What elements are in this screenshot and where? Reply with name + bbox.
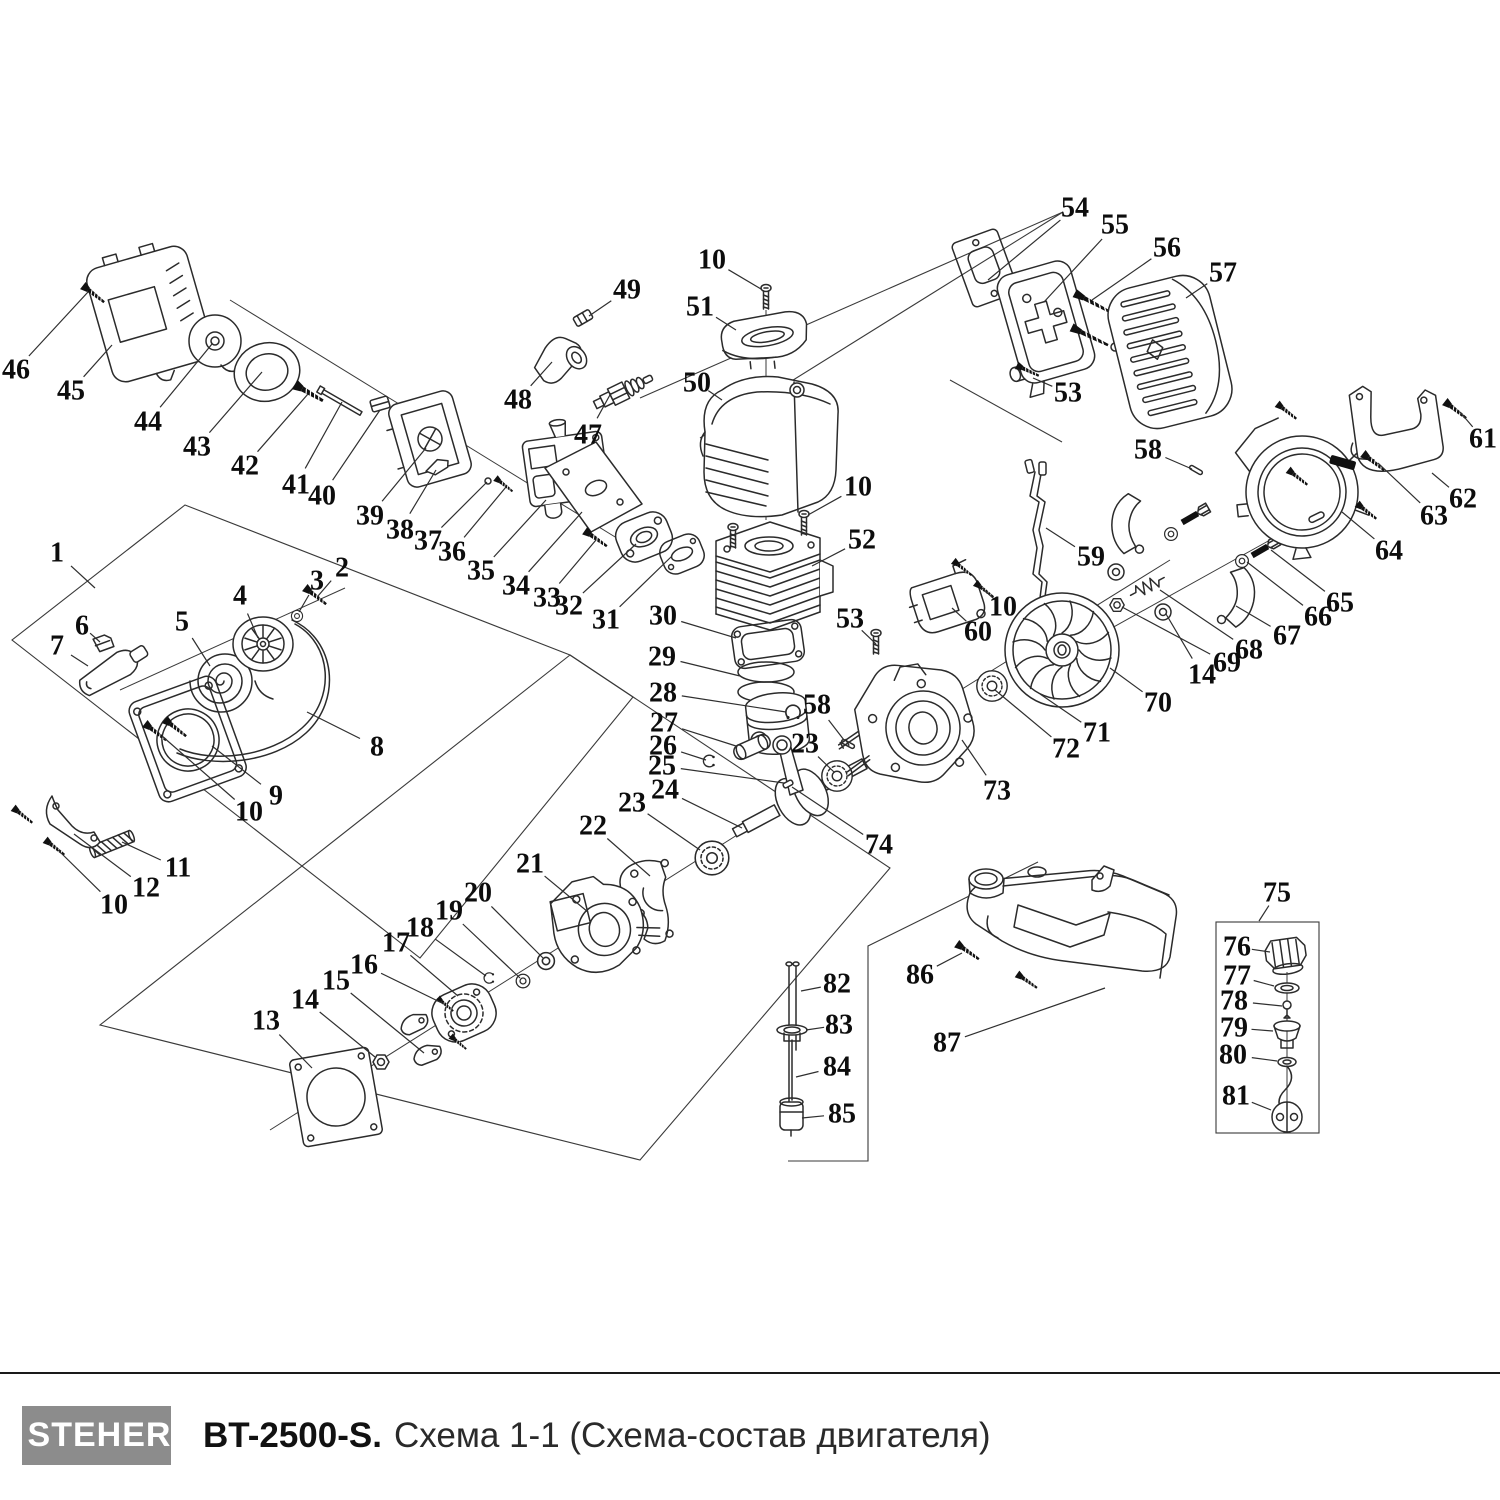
part-69-nut <box>1110 599 1124 612</box>
part-number-label: 50 <box>683 368 711 399</box>
part-62-bracket <box>1347 381 1445 473</box>
part-number-label: 27 <box>650 708 678 739</box>
part-80-seal <box>1278 1058 1296 1067</box>
model-number: BT-2500-S. <box>203 1416 382 1456</box>
part-number-label: 10 <box>989 592 1017 623</box>
exploded-parts-diagram: 1234567891011121013141516171819202122232… <box>0 0 1500 1500</box>
part-number-label: 8 <box>370 732 384 763</box>
part-number-label: 81 <box>1222 1081 1250 1112</box>
part-70-flywheel <box>1005 593 1119 707</box>
part-45-air-filter-cover <box>81 235 218 394</box>
leader-line <box>1254 981 1274 987</box>
part-86-screw <box>1015 971 1040 992</box>
part-washer <box>1165 528 1178 541</box>
sheet-subtitle: Схема 1-1 (Схема-состав двигателя) <box>394 1416 991 1456</box>
brand-logo: STEHER <box>22 1406 171 1465</box>
part-number-label: 37 <box>414 526 442 557</box>
part-10-screw <box>761 285 771 310</box>
part-number-label: 56 <box>1153 233 1181 264</box>
leader-line <box>962 740 986 775</box>
leader-line <box>299 595 309 612</box>
part-number-label: 10 <box>100 890 128 921</box>
part-number-label: 21 <box>516 849 544 880</box>
part-number-label: 40 <box>308 481 336 512</box>
leader-line <box>682 798 742 828</box>
leader-line <box>682 729 736 746</box>
part-number-label: 76 <box>1223 932 1251 963</box>
part-number-label: 22 <box>579 811 607 842</box>
part-57-muffler-cover <box>1102 270 1238 435</box>
part-number-label: 82 <box>823 969 851 1000</box>
leader-line <box>1252 1102 1271 1110</box>
part-9-starter-housing <box>126 674 249 805</box>
part-number-label: 30 <box>649 601 677 632</box>
leader-line <box>410 955 458 996</box>
part-26-circlip <box>703 755 714 767</box>
footer-divider <box>0 1372 1500 1374</box>
part-number-label: 85 <box>828 1099 856 1130</box>
part-12-bracket <box>11 796 100 858</box>
part-64-fan-housing <box>1228 410 1372 565</box>
part-number-label: 61 <box>1469 424 1497 455</box>
part-number-label: 52 <box>848 525 876 556</box>
part-number-label: 69 <box>1213 648 1241 679</box>
part-number-label: 55 <box>1101 210 1129 241</box>
part-number-label: 87 <box>933 1028 961 1059</box>
part-washer <box>1108 564 1124 580</box>
leader-line <box>937 953 962 966</box>
part-17-flange <box>426 978 503 1049</box>
part-number-label: 58 <box>1134 435 1162 466</box>
part-number-label: 72 <box>1052 734 1080 765</box>
leader-line <box>728 270 761 289</box>
part-number-label: 35 <box>467 556 495 587</box>
leader-line <box>681 752 706 760</box>
leader-line <box>494 500 546 557</box>
part-36-screw <box>493 475 514 494</box>
leader-line <box>463 924 520 978</box>
part-66-washer <box>1236 555 1249 568</box>
leader-line <box>258 394 309 452</box>
part-number-label: 84 <box>823 1052 851 1083</box>
part-77-washer <box>1275 983 1299 993</box>
part-number-label: 44 <box>134 407 162 438</box>
leader-line <box>681 769 784 783</box>
leader-line <box>681 662 741 677</box>
part-number-label: 2 <box>335 553 349 584</box>
part-number-label: 48 <box>504 385 532 416</box>
part-number-label: 16 <box>350 950 378 981</box>
part-number-label: 66 <box>1304 602 1332 633</box>
part-7-starter-handle <box>75 639 153 701</box>
part-number-label: 13 <box>252 1006 280 1037</box>
leader-line <box>802 1116 824 1118</box>
part-55-muffler-body <box>983 258 1101 401</box>
part-number-label: 53 <box>836 604 864 635</box>
leader-line <box>84 345 112 377</box>
leader-line <box>806 1027 824 1030</box>
part-67-clutch-shoe <box>1217 565 1257 628</box>
leader-line <box>74 834 131 877</box>
part-87-fuel-tank <box>967 866 1176 978</box>
part-number-label: 10 <box>844 472 872 503</box>
part-clutch-bolt <box>1180 503 1211 527</box>
leader-line <box>681 622 736 639</box>
leader-line <box>1110 668 1143 692</box>
part-15-claw <box>398 1011 431 1037</box>
part-number-label: 70 <box>1144 688 1172 719</box>
leader-line <box>559 540 596 584</box>
part-39-filter-base <box>381 389 474 492</box>
leader-line <box>801 987 821 991</box>
leader-line <box>796 1072 819 1078</box>
part-number-label: 31 <box>592 605 620 636</box>
page: 1234567891011121013141516171819202122232… <box>0 0 1500 1500</box>
part-78-valve <box>1283 1001 1291 1018</box>
leader-line <box>583 544 636 593</box>
part-number-label: 9 <box>269 781 283 812</box>
leader-line <box>529 512 582 572</box>
part-number-label: 39 <box>356 501 384 532</box>
leader-line <box>965 988 1105 1037</box>
leader-line <box>829 720 844 740</box>
part-50-engine-cover <box>700 377 838 517</box>
part-4-rope-pulley <box>233 617 293 671</box>
part-number-label: 43 <box>183 432 211 463</box>
part-number-label: 46 <box>2 355 30 386</box>
part-81-retainer <box>1272 1102 1302 1132</box>
leader-line <box>1252 1058 1277 1061</box>
part-number-label: 73 <box>983 776 1011 807</box>
part-number-label: 18 <box>406 913 434 944</box>
leader-line <box>71 655 88 666</box>
part-number-label: 49 <box>613 275 641 306</box>
leader-line <box>1253 1003 1282 1006</box>
part-number-label: 41 <box>282 470 310 501</box>
part-40-choke-piece <box>370 396 391 412</box>
leader-line <box>648 814 700 850</box>
part-6-rope-guide <box>93 633 114 652</box>
part-number-label: 71 <box>1083 718 1111 749</box>
part-number-label: 62 <box>1449 484 1477 515</box>
brand-name: STEHER <box>28 1416 172 1455</box>
part-number-label: 23 <box>618 788 646 819</box>
leader-line <box>29 292 88 356</box>
part-number-label: 63 <box>1420 501 1448 532</box>
part-58-pin <box>1189 465 1203 475</box>
part-number-label: 1 <box>50 538 64 569</box>
part-number-label: 15 <box>322 966 350 997</box>
part-number-label: 6 <box>75 611 89 642</box>
part-73-crankcase-half <box>827 653 982 796</box>
leader-line <box>589 301 611 316</box>
leader-line <box>620 556 672 607</box>
part-18-circlip <box>484 973 494 983</box>
part-number-label: 10 <box>698 245 726 276</box>
part-number-label: 60 <box>964 617 992 648</box>
part-76-tank-cap <box>1264 936 1308 976</box>
part-number-label: 51 <box>686 292 714 323</box>
part-number-label: 45 <box>57 376 85 407</box>
part-number-label: 75 <box>1263 878 1291 909</box>
part-number-label: 57 <box>1209 258 1237 289</box>
leader-line <box>435 939 486 976</box>
part-number-label: 7 <box>50 631 64 662</box>
leader-line <box>491 906 543 958</box>
part-52-cylinder <box>716 511 833 631</box>
leader-line <box>441 482 487 528</box>
part-13-mount-plate <box>289 1047 383 1148</box>
leader-line <box>192 638 210 666</box>
leader-line <box>1166 614 1192 659</box>
leader-line <box>305 402 342 468</box>
leader-line <box>1252 1029 1274 1031</box>
leader-line <box>1271 550 1325 591</box>
part-number-label: 80 <box>1219 1040 1247 1071</box>
part-clutch-shoe <box>1109 492 1149 555</box>
part-number-label: 3 <box>310 566 324 597</box>
leader-line <box>333 410 380 480</box>
part-number-label: 14 <box>1188 660 1216 691</box>
part-number-label: 53 <box>1054 378 1082 409</box>
part-number-label: 5 <box>175 607 189 638</box>
leader-line <box>381 973 444 1004</box>
part-number-label: 54 <box>1061 193 1089 224</box>
part-number-label: 38 <box>386 515 414 546</box>
part-number-label: 33 <box>533 583 561 614</box>
leader-line <box>1432 473 1449 487</box>
part-number-label: 23 <box>791 729 819 760</box>
leader-line <box>122 842 161 860</box>
leader-line <box>307 712 360 739</box>
part-41-rod <box>317 386 363 417</box>
part-68-spring <box>1128 572 1167 600</box>
part-number-label: 20 <box>464 878 492 909</box>
part-number-label: 10 <box>235 797 263 828</box>
part-number-label: 86 <box>906 960 934 991</box>
leader-line <box>1165 458 1192 470</box>
part-number-label: 29 <box>648 642 676 673</box>
part-number-label: 47 <box>574 420 602 451</box>
part-49-clip <box>573 309 594 327</box>
part-number-label: 58 <box>803 690 831 721</box>
leader-line <box>58 850 100 892</box>
part-47-spark-plug <box>591 369 656 413</box>
part-number-label: 42 <box>231 451 259 482</box>
part-number-label: 74 <box>865 830 893 861</box>
part-51-cover-plate <box>719 310 810 374</box>
part-number-label: 14 <box>291 985 319 1016</box>
part-3-washer <box>291 610 302 621</box>
part-86-screw <box>954 940 981 963</box>
part-number-label: 67 <box>1273 621 1301 652</box>
part-number-label: 11 <box>165 853 191 884</box>
part-number-label: 28 <box>649 678 677 709</box>
part-number-label: 12 <box>132 873 160 904</box>
part-number-label: 34 <box>502 571 530 602</box>
sheet-title: BT-2500-S. Схема 1-1 (Схема-состав двига… <box>203 1406 991 1465</box>
part-number-label: 4 <box>233 581 247 612</box>
part-82-85-fuel-line-and-filter <box>777 962 807 1136</box>
part-48-plug-cap <box>528 329 591 390</box>
leader-line <box>1046 528 1075 547</box>
part-number-label: 64 <box>1375 536 1403 567</box>
leader-line <box>464 487 506 537</box>
part-number-label: 83 <box>825 1010 853 1041</box>
part-number-label: 36 <box>438 537 466 568</box>
part-14-nut <box>373 1055 389 1069</box>
part-number-label: 19 <box>435 896 463 927</box>
part-23-bearing <box>695 841 729 875</box>
part-number-label: 59 <box>1077 542 1105 573</box>
part-53-screw <box>871 630 881 655</box>
